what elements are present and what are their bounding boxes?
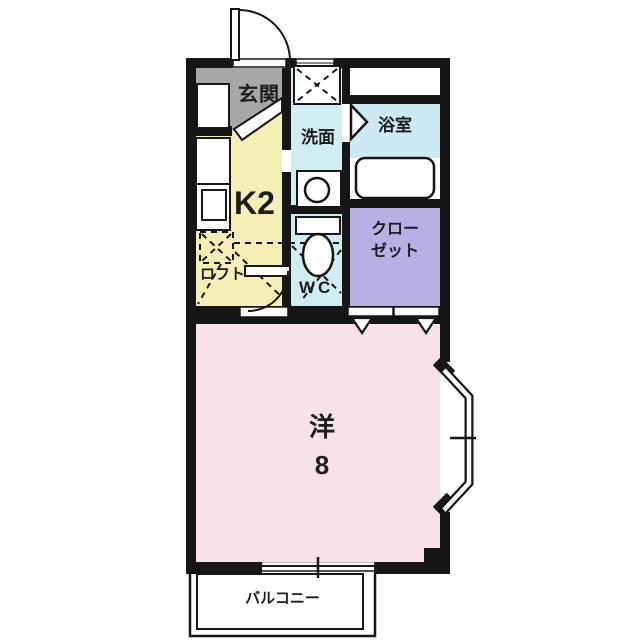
wall-kitchen-wash-upper xyxy=(282,68,291,150)
genkan-label: 玄関 xyxy=(238,82,280,109)
wall-bath-closet xyxy=(342,199,450,208)
closet-folding-door-right xyxy=(394,307,439,316)
kitchen-door-panel xyxy=(245,266,290,276)
entry-door-swing-arc xyxy=(239,10,290,61)
closet-label: クロー ゼット xyxy=(350,219,440,262)
wall-service-bath xyxy=(350,95,440,104)
balcony-label: バルコニー xyxy=(190,589,375,609)
western-room-label: 洋 8 xyxy=(291,409,353,484)
wall-wash-closet-lower xyxy=(342,142,350,312)
bathtub xyxy=(356,158,434,198)
floorplan-drawing xyxy=(0,0,640,640)
entry-door-panel xyxy=(231,9,239,60)
toilet-tank xyxy=(296,217,340,234)
wall-top-right xyxy=(334,58,450,68)
wall-wash-bath-upper xyxy=(342,68,350,104)
washroom-label: 洗面 xyxy=(301,127,335,150)
wall-bottom-notch xyxy=(424,548,450,564)
floorplan-image: 玄関 K2 ロフト 洗面 WC 浴室 クロー ゼット 洋 8 バルコニー xyxy=(0,0,640,640)
wall-bottom-left xyxy=(186,562,262,574)
closet-folding-door-left xyxy=(348,307,393,316)
service-space-floor xyxy=(350,64,440,96)
toilet-bowl xyxy=(303,234,333,276)
wash-basin-bowl xyxy=(305,178,329,202)
entry-door-threshold xyxy=(233,59,286,67)
loft-label: ロフト xyxy=(200,265,245,285)
kitchen-sink xyxy=(202,190,226,220)
kitchen-label: K2 xyxy=(234,182,275,225)
wc-label: WC xyxy=(299,277,333,300)
shoe-cabinet xyxy=(197,84,229,128)
bathroom-label: 浴室 xyxy=(378,115,412,138)
